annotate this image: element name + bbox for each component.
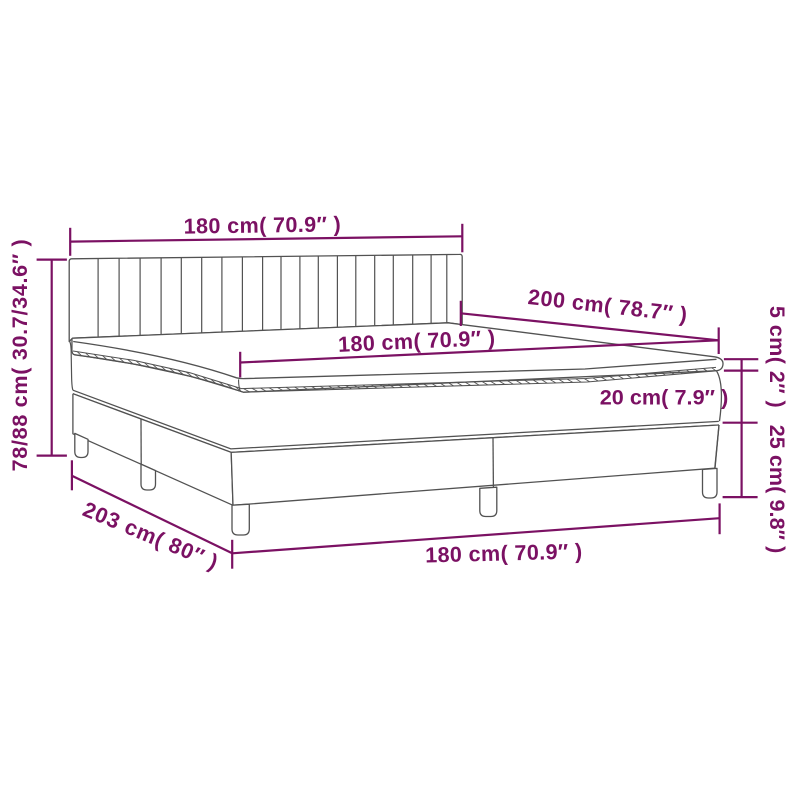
svg-text:180 cm( 70.9″ ): 180 cm( 70.9″ ) [425, 538, 583, 567]
svg-text:20 cm( 7.9″ ): 20 cm( 7.9″ ) [600, 385, 729, 410]
svg-text:25 cm( 9.8″ ): 25 cm( 9.8″ ) [765, 425, 790, 554]
svg-text:5 cm( 2″ ): 5 cm( 2″ ) [765, 306, 790, 408]
svg-text:180 cm( 70.9″ ): 180 cm( 70.9″ ) [184, 211, 342, 238]
svg-text:78/88 cm( 30.7/34.6″ ): 78/88 cm( 30.7/34.6″ ) [7, 239, 32, 472]
